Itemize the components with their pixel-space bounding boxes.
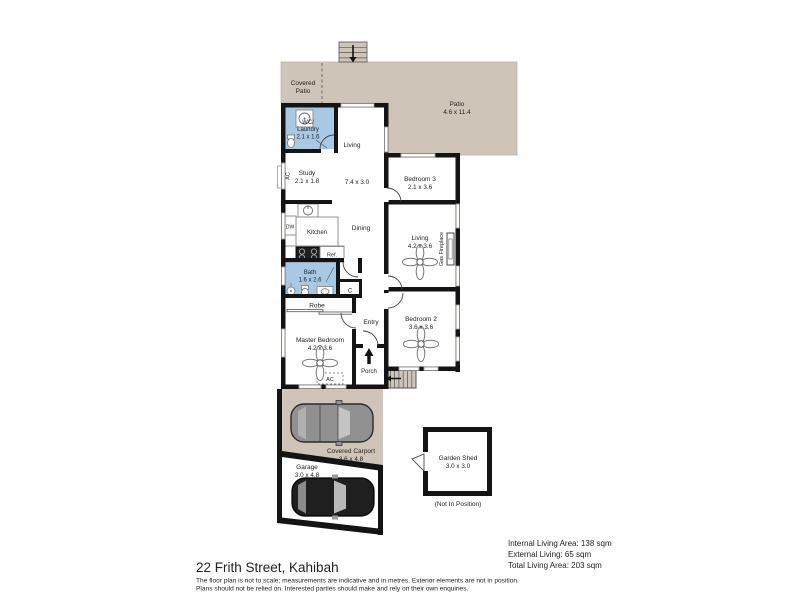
gas-fireplace-label: Gas Fireplace: [439, 232, 445, 266]
wc-laundry-label2: Laundry: [297, 127, 319, 133]
study-label: Study: [299, 170, 316, 177]
external-area-text: External Living: 65 sqm: [508, 550, 591, 559]
shed-door-flap: [412, 454, 424, 471]
car-garage-icon: [292, 475, 374, 520]
master-bedroom-dims: 4.2 x 3.6: [308, 345, 333, 352]
covered-patio-label2: Patio: [296, 88, 311, 95]
garage-dims: 3.0 x 4.8: [295, 472, 320, 479]
study-dims: 2.1 x 1.8: [295, 178, 320, 185]
ac-master-label: AC: [326, 377, 334, 383]
living-main-label: Living: [344, 142, 361, 149]
living2-dims: 4.2 x 3.6: [408, 243, 433, 250]
footer: 22 Frith Street, Kahibah The floor plan …: [196, 539, 612, 593]
carport-label: Covered Carport: [327, 448, 375, 455]
fridge-label: Ref.: [327, 253, 338, 259]
living2-label: Living: [412, 235, 429, 242]
wc-laundry-label: WC/: [302, 120, 314, 126]
carport-dims: 3.6 x 4.8: [339, 456, 364, 463]
floor-plan-canvas: Covered Patio Patio 4.6 x 11.4 WC/ Laund…: [0, 0, 800, 600]
car-carport-icon: [291, 401, 373, 446]
patio-label: Patio: [450, 101, 465, 108]
robe-label: Robe: [309, 303, 325, 310]
side-exterior-stairs: [386, 369, 416, 388]
patio-dims: 4.6 x 11.4: [443, 109, 471, 116]
garden-shed-note: (Not In Position): [435, 501, 482, 508]
kitchen-label: Kitchen: [307, 230, 327, 236]
porch-label: Porch: [361, 369, 377, 375]
ac-study-label: AC: [286, 172, 292, 180]
total-area-text: Total Living Area: 203 sqm: [508, 561, 602, 570]
bedroom2-label: Bedroom 2: [405, 316, 437, 323]
bedroom3-dims: 2.1 x 3.6: [408, 184, 433, 191]
entry-label: Entry: [363, 319, 379, 326]
bedroom2-dims: 3.6 x 3.6: [409, 324, 434, 331]
wc-laundry-dims: 2.1 x 1.6: [296, 135, 320, 141]
living-main-dims: 7.4 x 3.0: [345, 179, 370, 186]
internal-area-text: Internal Living Area: 138 sqm: [508, 539, 612, 548]
cupboard-label: C: [348, 289, 353, 295]
master-bedroom-label: Master Bedroom: [296, 337, 344, 344]
garage-label: Garage: [296, 464, 318, 471]
garden-shed-label: Garden Shed: [439, 455, 478, 462]
top-exterior-stairs: [339, 42, 367, 63]
bath-dims: 1.6 x 2.6: [298, 278, 322, 284]
disclaimer-line1: The floor plan is not to scale; measurem…: [196, 578, 519, 585]
bedroom3-label: Bedroom 3: [404, 176, 436, 183]
covered-patio-label: Covered: [291, 80, 316, 87]
floor-plan-page: Covered Patio Patio 4.6 x 11.4 WC/ Laund…: [0, 0, 800, 600]
dining-label: Dining: [352, 225, 371, 232]
bath-label: Bath: [304, 270, 316, 276]
garden-shed-dims: 3.0 x 3.0: [446, 463, 471, 470]
page-title: 22 Frith Street, Kahibah: [196, 560, 339, 575]
gas-fireplace-unit: [447, 233, 454, 265]
disclaimer-line2: Plans should not be relied on. Intereste…: [196, 586, 469, 593]
toilet-icon: [288, 135, 295, 148]
dishwasher-label: DW: [286, 225, 295, 231]
